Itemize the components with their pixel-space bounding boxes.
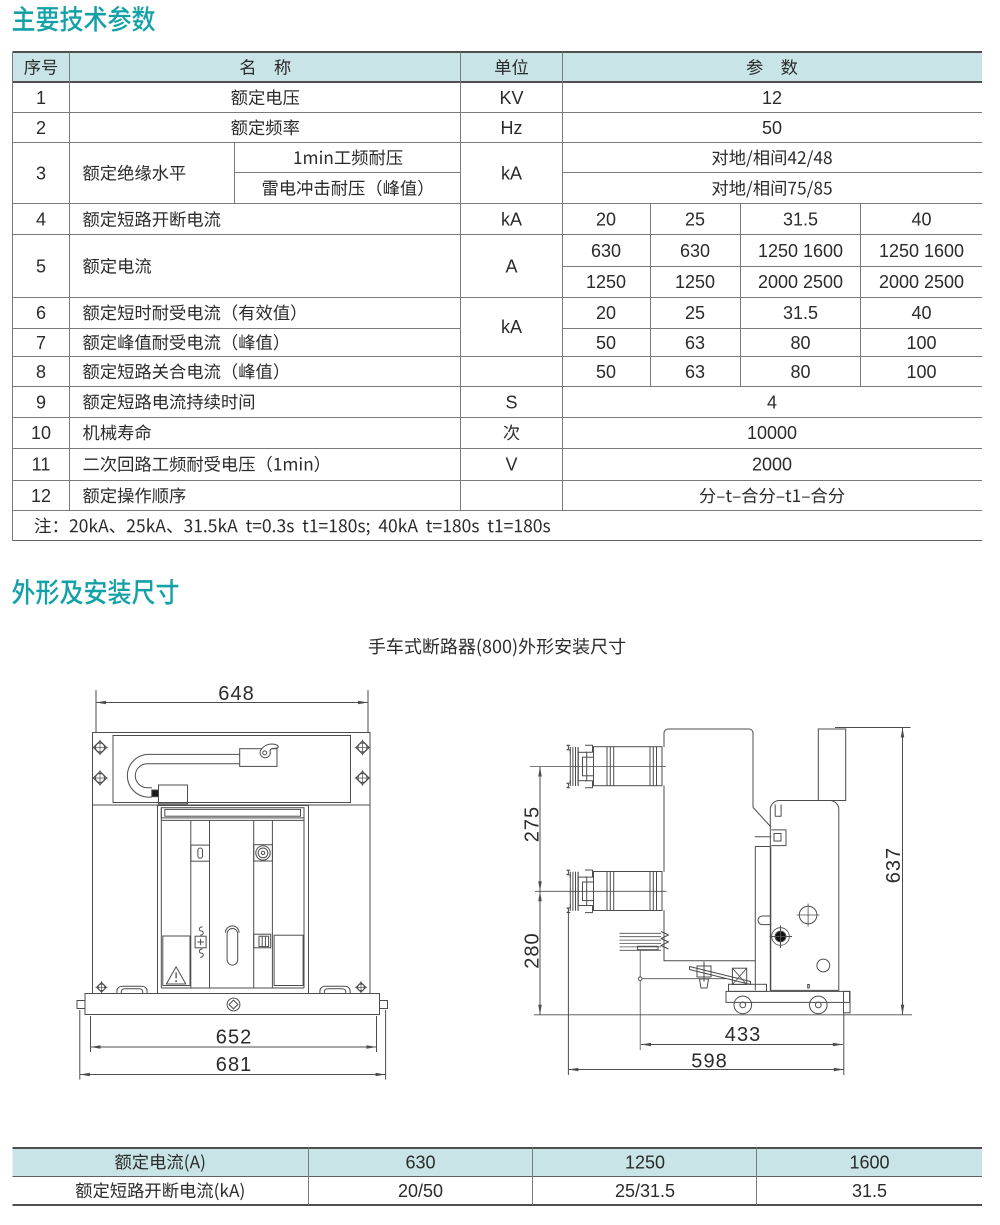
- svg-text:100: 100: [906, 333, 936, 353]
- svg-text:1250 1600: 1250 1600: [758, 241, 843, 261]
- svg-text:652: 652: [216, 1027, 251, 1049]
- svg-text:5: 5: [36, 257, 46, 277]
- svg-text:433: 433: [725, 1024, 760, 1046]
- svg-text:31.5: 31.5: [852, 1181, 887, 1201]
- svg-text:681: 681: [216, 1054, 251, 1076]
- svg-text:20/50: 20/50: [398, 1181, 443, 1201]
- svg-text:630: 630: [680, 241, 710, 261]
- svg-text:31.5: 31.5: [783, 210, 818, 230]
- svg-text:25: 25: [685, 210, 705, 230]
- svg-text:1250 1600: 1250 1600: [879, 241, 964, 261]
- svg-text:1250: 1250: [675, 272, 715, 292]
- svg-text:31.5: 31.5: [783, 303, 818, 323]
- svg-text:630: 630: [591, 241, 621, 261]
- svg-text:40: 40: [911, 303, 931, 323]
- svg-text:12: 12: [31, 486, 51, 506]
- svg-text:1: 1: [36, 88, 46, 108]
- svg-text:9: 9: [36, 392, 46, 412]
- svg-text:Hz: Hz: [501, 118, 523, 138]
- svg-text:20: 20: [596, 303, 616, 323]
- svg-text:2000: 2000: [752, 455, 792, 475]
- svg-text:50: 50: [596, 362, 616, 382]
- svg-text:2: 2: [36, 118, 46, 138]
- svg-text:40: 40: [911, 210, 931, 230]
- svg-text:11: 11: [32, 455, 51, 475]
- svg-text:100: 100: [906, 362, 936, 382]
- svg-text:V: V: [505, 455, 517, 475]
- svg-text:80: 80: [790, 333, 810, 353]
- svg-text:8: 8: [36, 362, 46, 382]
- svg-text:80: 80: [790, 362, 810, 382]
- svg-text:kA: kA: [501, 317, 522, 337]
- svg-text:6: 6: [36, 303, 46, 323]
- svg-text:10000: 10000: [747, 423, 797, 443]
- svg-text:63: 63: [685, 333, 705, 353]
- svg-text:630: 630: [405, 1152, 435, 1172]
- svg-text:50: 50: [596, 333, 616, 353]
- svg-text:7: 7: [36, 333, 46, 353]
- svg-text:1250: 1250: [586, 272, 626, 292]
- svg-text:648: 648: [218, 683, 253, 705]
- svg-text:10: 10: [31, 423, 51, 443]
- svg-text:3: 3: [36, 164, 46, 184]
- svg-text:KV: KV: [499, 88, 523, 108]
- svg-text:63: 63: [685, 362, 705, 382]
- svg-text:50: 50: [762, 118, 782, 138]
- svg-text:kA: kA: [501, 164, 522, 184]
- svg-text:1600: 1600: [849, 1152, 889, 1172]
- svg-text:2000 2500: 2000 2500: [758, 272, 843, 292]
- svg-text:4: 4: [767, 392, 777, 412]
- svg-text:kA: kA: [501, 210, 522, 230]
- svg-text:25: 25: [685, 303, 705, 323]
- svg-text:1250: 1250: [625, 1152, 665, 1172]
- svg-text:S: S: [505, 392, 517, 412]
- svg-text:4: 4: [36, 210, 46, 230]
- svg-text:20: 20: [596, 210, 616, 230]
- svg-text:A: A: [505, 257, 517, 277]
- svg-text:637: 637: [883, 848, 905, 883]
- svg-text:12: 12: [762, 88, 782, 108]
- svg-text:2000 2500: 2000 2500: [879, 272, 964, 292]
- svg-text:25/31.5: 25/31.5: [615, 1181, 675, 1201]
